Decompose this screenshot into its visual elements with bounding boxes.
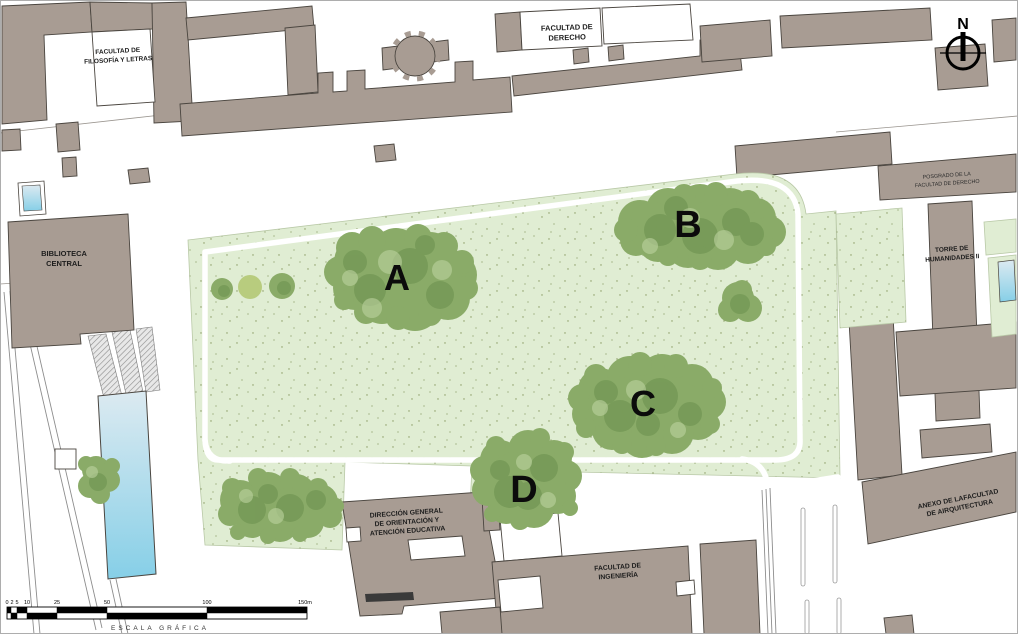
scale-tick-150m: 150m — [298, 600, 312, 606]
scale-tick-0: 0 — [5, 600, 8, 606]
scale-caption: ESCALA GRÁFICA — [111, 623, 209, 632]
north-label: N — [957, 16, 969, 33]
label-biblioteca-line2: CENTRAL — [46, 259, 82, 268]
campus-map: A B C D FACULTAD DE FILOSOFÍA Y LETRAS F… — [0, 0, 1018, 634]
zone-label-c: C — [630, 383, 656, 424]
label-derecho-line1: FACULTAD DE — [541, 22, 593, 33]
scale-tick-25: 25 — [54, 600, 60, 606]
zone-label-b: B — [674, 204, 701, 246]
label-derecho-line2: DERECHO — [548, 32, 586, 42]
zone-label-d: D — [510, 469, 537, 511]
scale-tick-100: 100 — [202, 600, 211, 606]
map-canvas: A B C D FACULTAD DE FILOSOFÍA Y LETRAS F… — [0, 0, 1018, 634]
small-pool-northwest — [18, 181, 46, 216]
scale-tick-5: 5 — [15, 600, 18, 606]
zone-label-a: A — [384, 257, 410, 298]
scale-tick-2: 2 — [10, 600, 13, 606]
label-biblioteca-line1: BIBLIOTECA — [41, 249, 87, 258]
small-pool-east — [998, 260, 1016, 302]
scale-tick-10: 10 — [24, 600, 30, 606]
scale-tick-50: 50 — [104, 600, 110, 606]
